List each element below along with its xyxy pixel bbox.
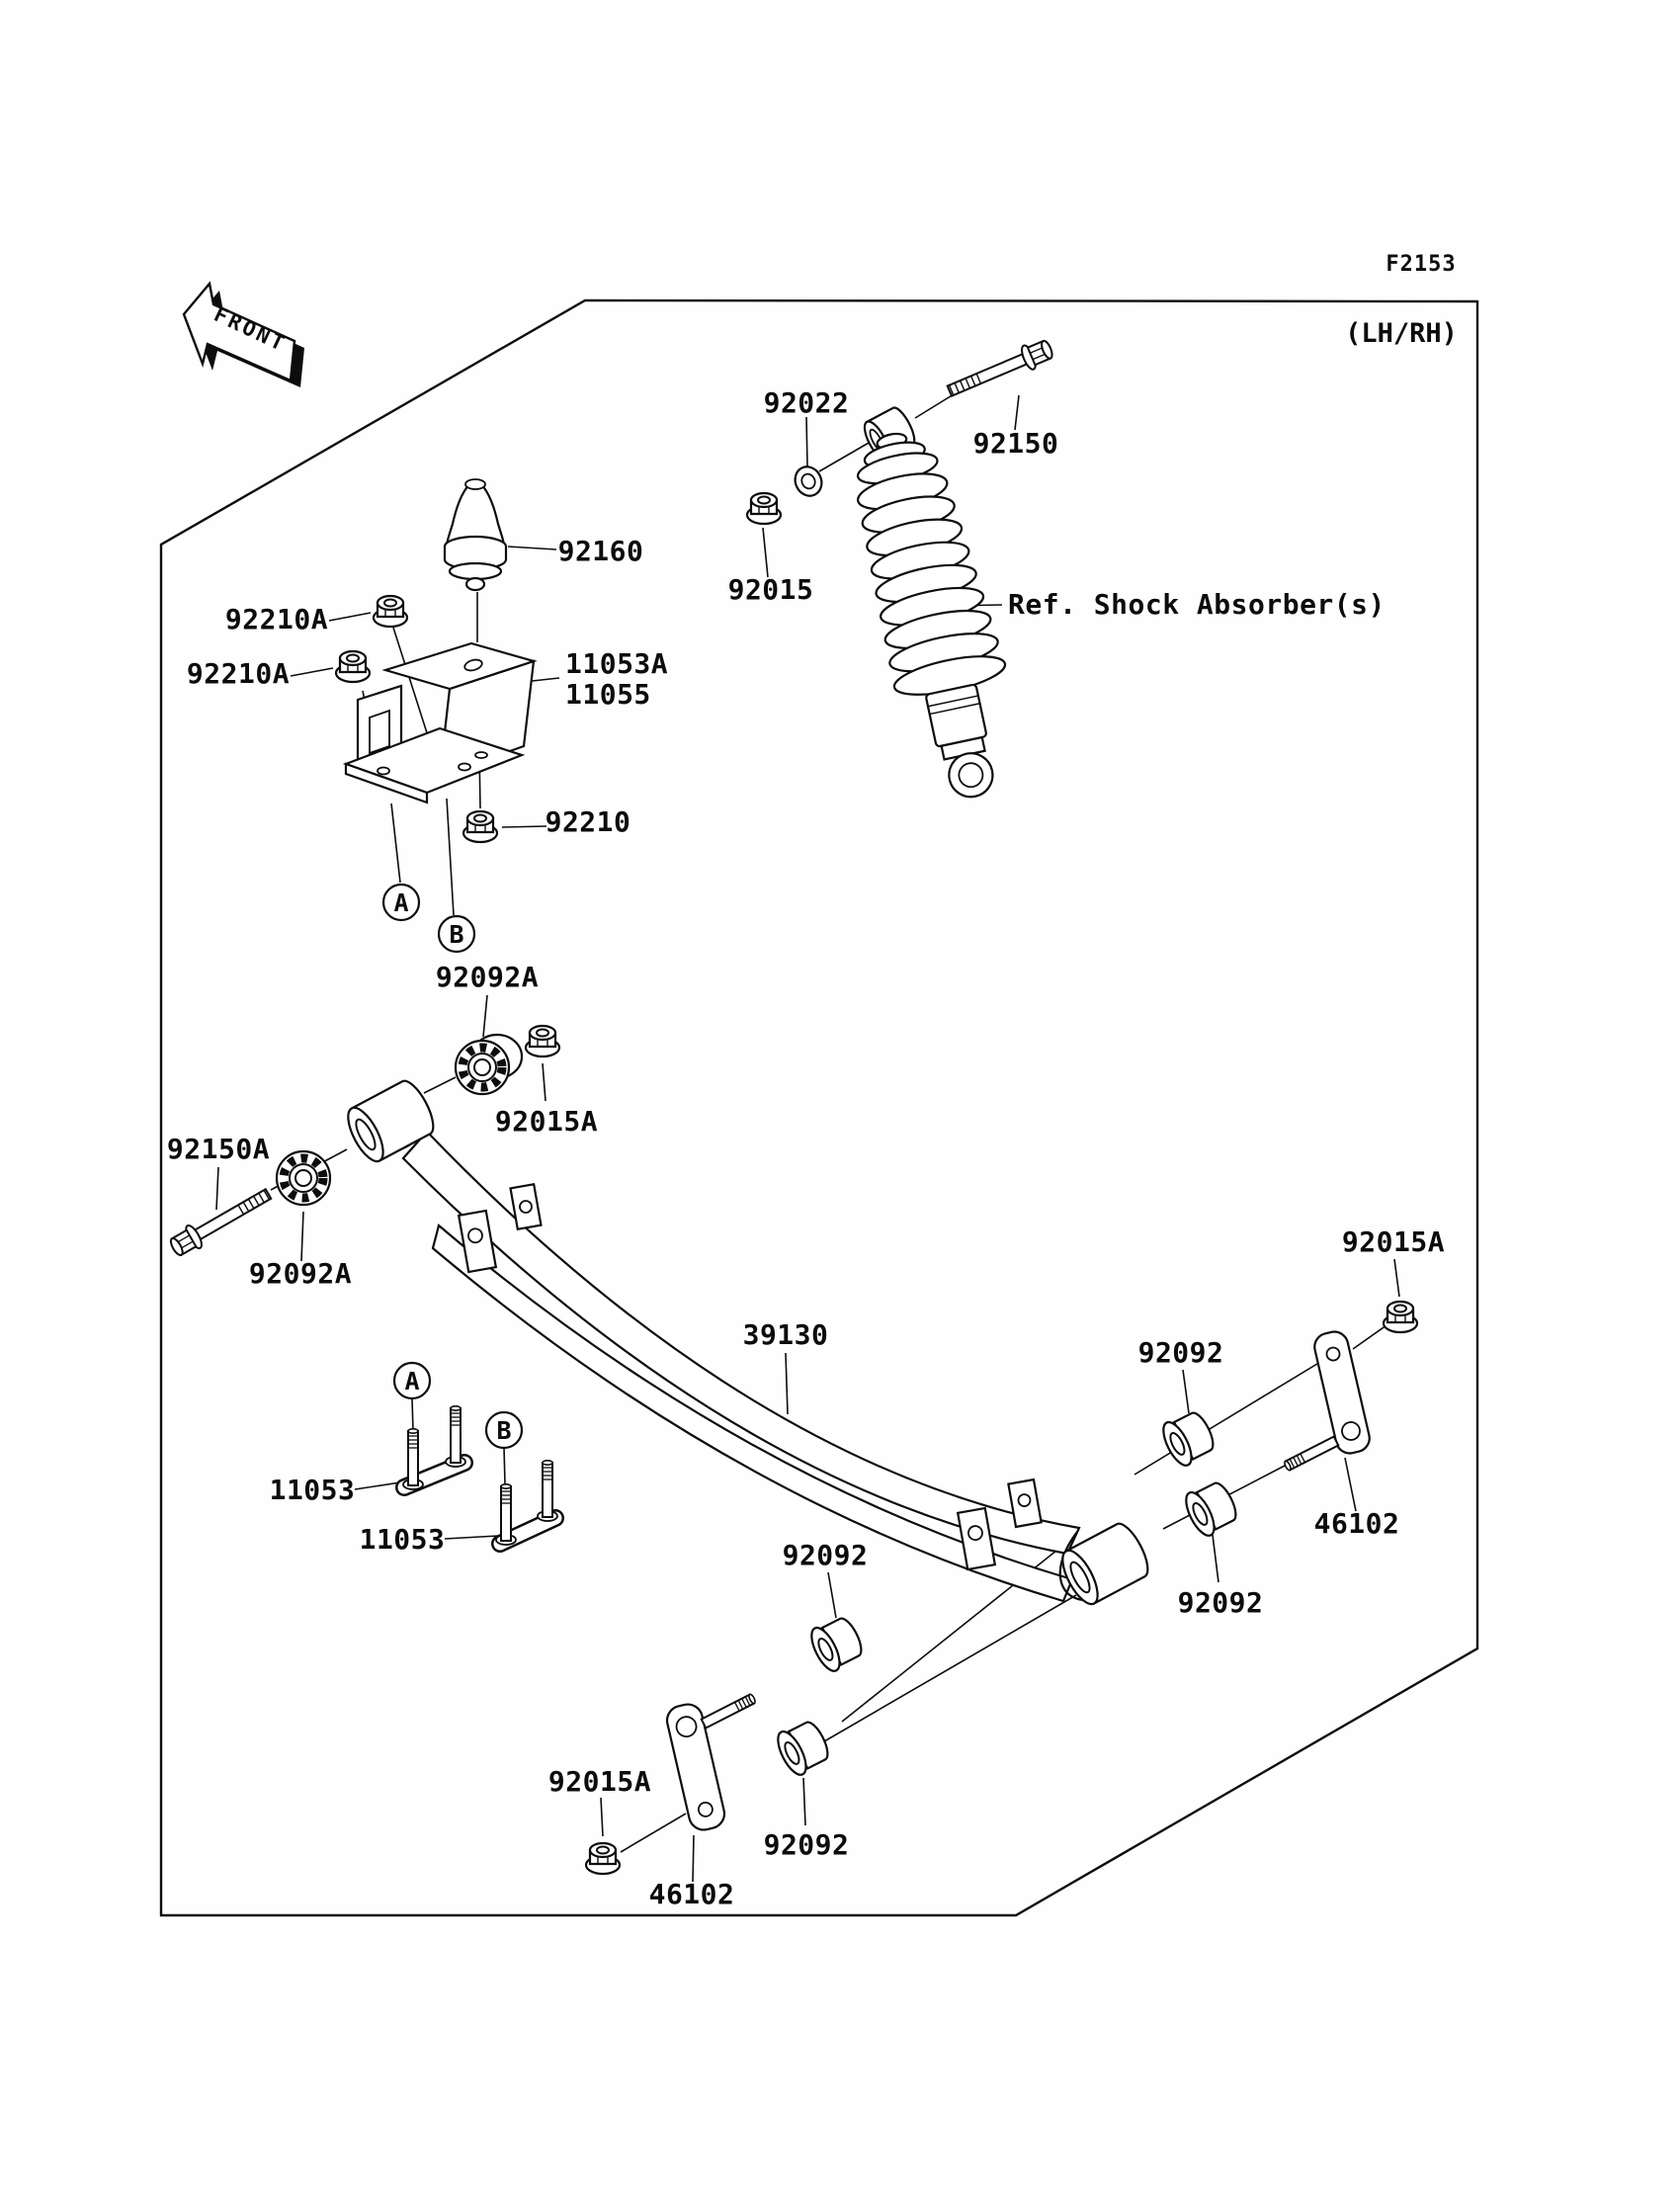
shackle-nut-left	[586, 1843, 620, 1874]
shackle-stud-left	[702, 1694, 757, 1729]
shock-bracket	[346, 643, 534, 803]
label-92150: 92150	[973, 427, 1059, 460]
shock-mount-bolt	[945, 336, 1055, 402]
label-92092a-top: 92092A	[436, 961, 539, 993]
leaf-spring-assembly	[167, 1026, 1417, 1874]
label-92210: 92210	[546, 805, 631, 838]
pivot-nut	[526, 1026, 559, 1056]
parts-diagram-page: F2153 (LH/RH) FRONT	[0, 0, 1680, 2197]
shackle-bushing-1	[806, 1613, 868, 1675]
shock-nut	[747, 493, 781, 524]
bumper-bracket-assembly	[336, 479, 534, 952]
bracket-lock-nut	[463, 811, 497, 842]
label-92210a-2: 92210A	[187, 657, 290, 690]
callout-a-top: A	[393, 888, 408, 917]
label-92092a-bottom: 92092A	[249, 1257, 352, 1290]
label-46102-right: 46102	[1314, 1507, 1400, 1540]
bump-stop	[445, 479, 506, 590]
shackle-bushing-3	[1158, 1407, 1219, 1470]
label-92150a: 92150A	[167, 1133, 270, 1165]
pivot-splined-washer	[277, 1151, 330, 1205]
shock-washer	[791, 463, 826, 500]
shackle-plate-right	[1311, 1329, 1372, 1456]
label-92092-left: 92092	[764, 1828, 850, 1861]
label-92210a-1: 92210A	[225, 603, 328, 635]
label-11053-a: 11053	[270, 1474, 356, 1506]
pivot-bolt	[167, 1183, 275, 1260]
callout-b-mid: B	[496, 1416, 511, 1445]
label-92015: 92015	[728, 573, 814, 606]
bracket-flange-nut-1	[374, 596, 407, 627]
label-92092-mid: 92092	[783, 1539, 869, 1571]
pivot-splined-collar	[456, 1041, 509, 1094]
label-11055: 11055	[565, 678, 651, 711]
shackle-stud-right	[1284, 1437, 1339, 1472]
label-92015a-left: 92015A	[548, 1765, 651, 1798]
shackle-bushing-4	[1181, 1478, 1242, 1540]
label-11053-b: 11053	[360, 1523, 446, 1556]
label-92015a-top: 92015A	[495, 1105, 598, 1138]
label-ref-shock: Ref. Shock Absorber(s)	[1008, 588, 1386, 621]
shock-body	[843, 421, 1031, 808]
label-92160: 92160	[558, 535, 644, 567]
label-11053a: 11053A	[565, 647, 668, 680]
callout-b-top: B	[449, 920, 463, 949]
label-46102-left: 46102	[649, 1878, 735, 1910]
label-92015a-right: 92015A	[1342, 1225, 1445, 1258]
front-direction-arrow: FRONT	[184, 284, 304, 387]
shackle-nut-right	[1384, 1302, 1417, 1332]
label-92022: 92022	[764, 386, 850, 419]
shackle-bushing-2	[773, 1717, 834, 1779]
bracket-flange-nut-2	[336, 651, 370, 682]
callout-a-mid: A	[404, 1367, 419, 1395]
side-variant-note: (LH/RH)	[1345, 318, 1458, 349]
label-92092-right-bottom: 92092	[1178, 1586, 1264, 1619]
figure-code: F2153	[1386, 252, 1456, 277]
label-92092-right-top: 92092	[1138, 1336, 1224, 1369]
label-39130: 39130	[743, 1318, 829, 1351]
